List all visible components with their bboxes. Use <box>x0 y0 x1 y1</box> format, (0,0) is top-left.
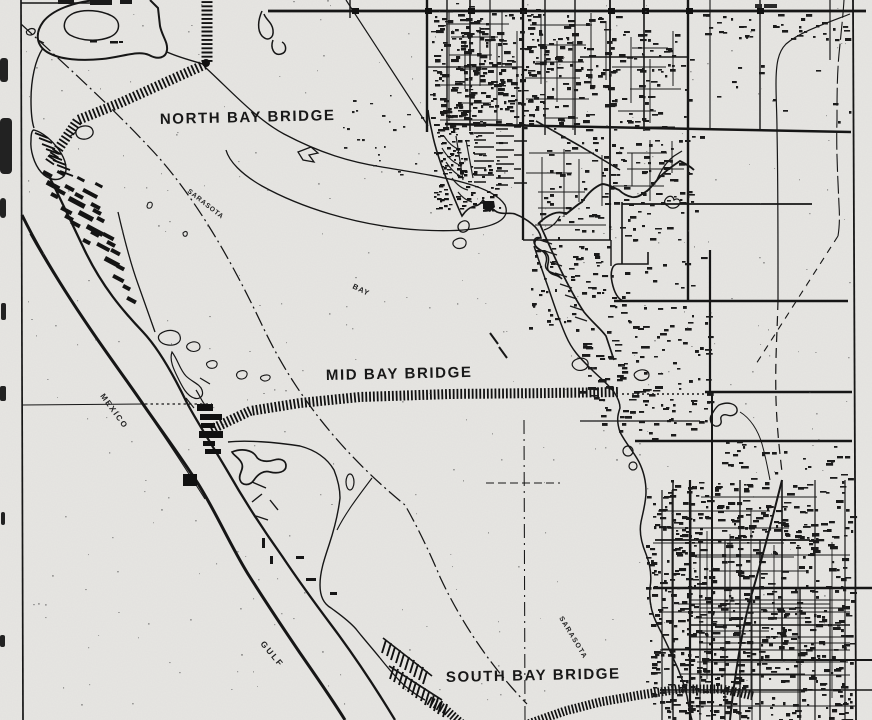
svg-text:MID BAY BRIDGE: MID BAY BRIDGE <box>326 364 473 384</box>
